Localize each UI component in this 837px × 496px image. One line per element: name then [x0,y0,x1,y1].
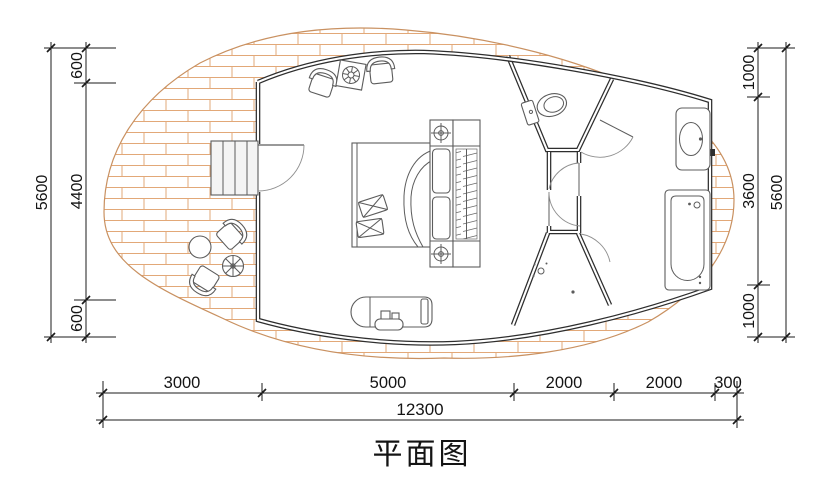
dim-label: 600 [69,52,86,79]
dim-total-label: 5600 [34,175,51,211]
dim-label: 3000 [164,374,201,392]
double-bed [352,143,433,247]
dim-label: 1000 [741,293,758,329]
dim-total-label: 5600 [769,175,786,211]
dim-label: 300 [714,374,742,392]
wardrobe-hangers [453,120,480,267]
dim-label: 1000 [741,55,758,91]
dimension-left: 600 4400 600 5600 [34,42,116,343]
dim-total-label: 12300 [396,400,443,419]
dimension-right: 1000 3600 1000 5600 [741,42,795,343]
bathtub [665,190,710,290]
drawing-title: 平面图 [373,438,472,471]
deck-parasol-table [223,256,244,277]
dim-label: 2000 [646,374,683,392]
dim-label: 2000 [546,374,583,392]
washbasin [676,108,710,170]
floor-drain [571,290,574,293]
dimension-bottom: 3000 5000 2000 2000 300 12300 [96,374,744,428]
tv-console [351,297,432,330]
dim-label: 600 [69,305,86,332]
dim-label: 5000 [370,374,407,392]
dim-label: 4400 [69,174,86,210]
dim-label: 3600 [741,173,758,209]
decor-table [336,60,366,90]
pillow [356,218,384,237]
floor-plan-canvas: 600 4400 600 5600 1000 3600 1000 5600 30… [0,0,837,496]
headboard-console [430,120,453,267]
entry-steps [211,141,258,195]
floor-plan-page: 600 4400 600 5600 1000 3600 1000 5600 30… [0,0,837,496]
deck-round-table [189,236,211,258]
